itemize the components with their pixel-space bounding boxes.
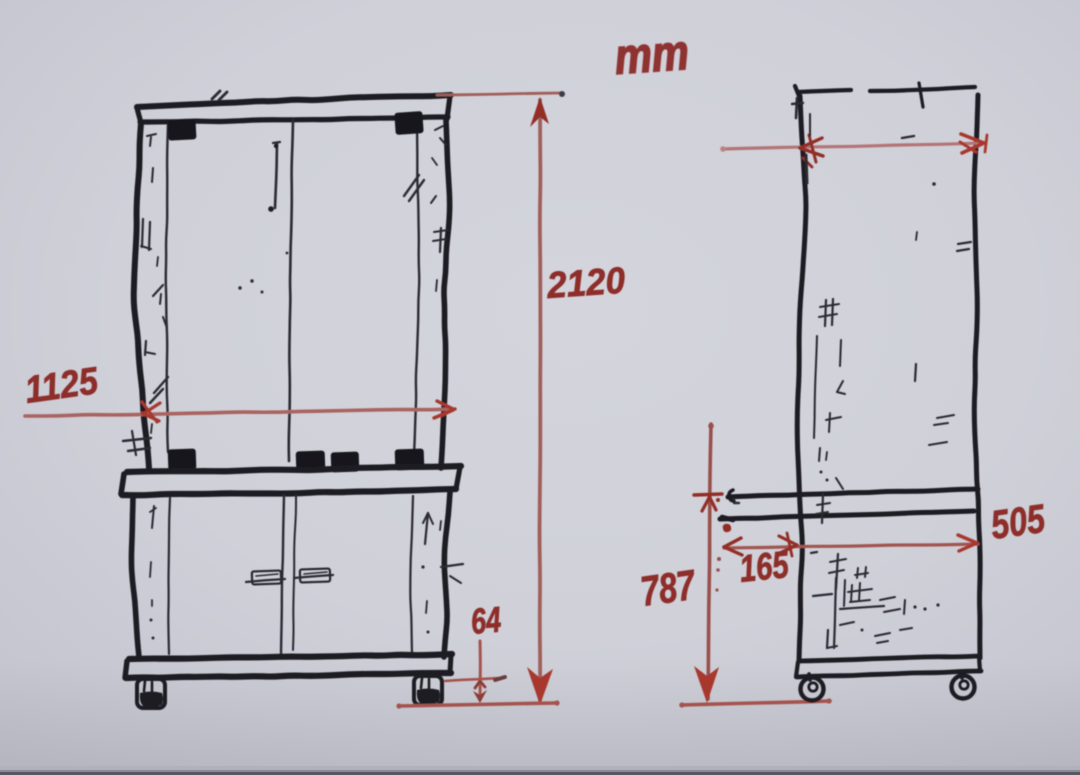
svg-text:64: 64 bbox=[469, 599, 502, 642]
svg-text:787: 787 bbox=[638, 561, 699, 615]
svg-text:505: 505 bbox=[988, 497, 1048, 548]
svg-text:165: 165 bbox=[738, 544, 792, 591]
svg-text:2120: 2120 bbox=[545, 260, 627, 306]
svg-text:mm: mm bbox=[613, 24, 691, 85]
